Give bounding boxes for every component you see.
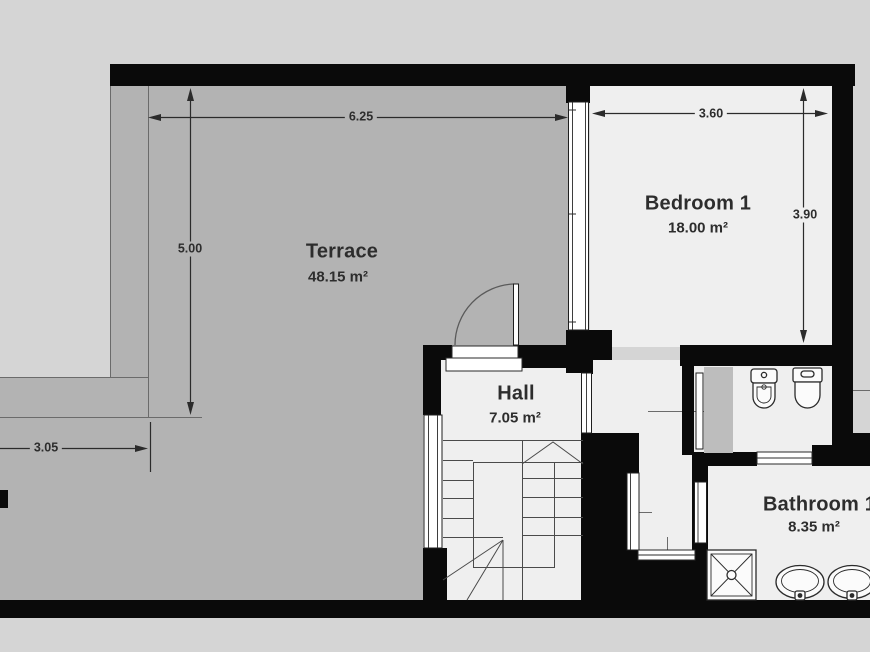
dimension-terrace-left-width: 3.05	[30, 441, 62, 456]
bathroom-window	[695, 482, 707, 543]
room-area-bathroom1: 8.35 m²	[788, 519, 840, 536]
bidet	[751, 369, 777, 408]
corridor-door	[582, 373, 592, 433]
room-label-bedroom1: Bedroom 1	[645, 193, 751, 216]
room-label-terrace: Terrace	[306, 241, 378, 264]
hall-window	[424, 415, 442, 548]
room-area-hall: 7.05 m²	[489, 410, 541, 427]
wc-sliding-door	[696, 367, 733, 453]
wc-door-sill	[757, 452, 812, 464]
hall-door-sill	[446, 346, 522, 371]
stairs-window	[627, 473, 639, 550]
terrace-bedroom-window	[569, 102, 589, 330]
room-label-bathroom1: Bathroom 1	[763, 494, 870, 517]
dimension-terrace-height: 5.00	[174, 242, 206, 257]
toilet	[793, 368, 822, 408]
room-label-hall: Hall	[497, 383, 534, 406]
dimension-bedroom-height: 3.90	[789, 208, 821, 223]
floor-plan-drawing	[0, 0, 870, 652]
bathroom-door-sill	[638, 550, 695, 560]
room-area-terrace: 48.15 m²	[308, 269, 368, 286]
dimension-bedroom-width: 3.60	[695, 107, 727, 122]
shower	[707, 550, 756, 600]
floor-plan: Terrace 48.15 m² Bedroom 1 18.00 m² Hall…	[0, 0, 870, 652]
dimension-terrace-width: 6.25	[345, 110, 377, 125]
room-area-bedroom1: 18.00 m²	[668, 220, 728, 237]
